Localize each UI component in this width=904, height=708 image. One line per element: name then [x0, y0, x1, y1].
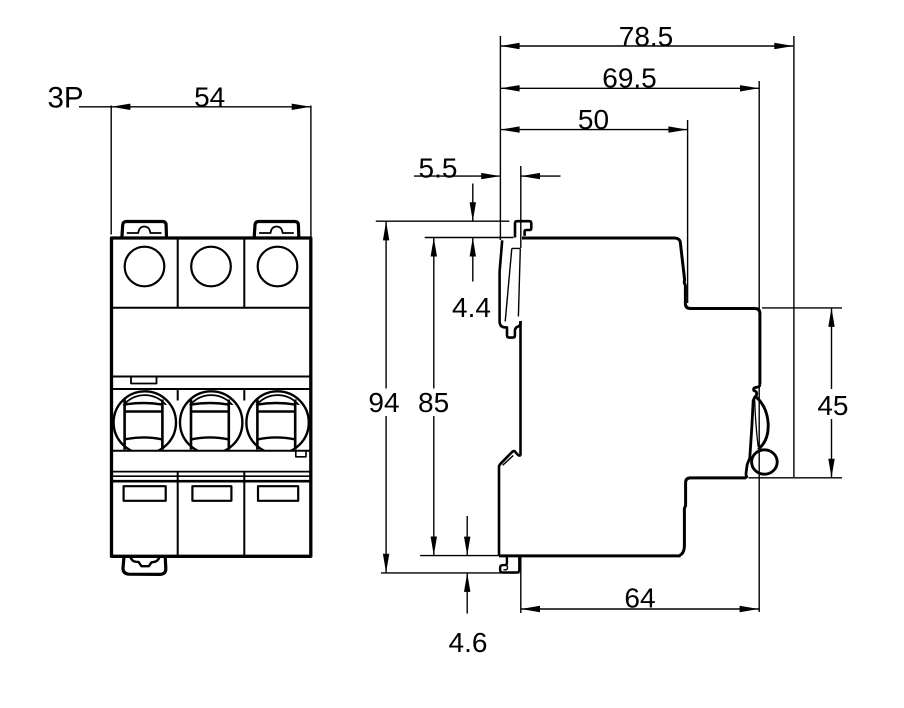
svg-text:45: 45: [817, 390, 848, 421]
svg-text:5.5: 5.5: [419, 153, 458, 184]
svg-text:78.5: 78.5: [619, 21, 674, 52]
svg-text:85: 85: [418, 387, 449, 418]
svg-text:4.6: 4.6: [449, 627, 488, 658]
svg-text:64: 64: [624, 582, 655, 613]
svg-text:54: 54: [194, 81, 225, 112]
svg-text:50: 50: [578, 104, 609, 135]
svg-text:3P: 3P: [48, 82, 84, 115]
svg-text:4.4: 4.4: [452, 292, 491, 323]
svg-text:69.5: 69.5: [602, 63, 657, 94]
svg-text:94: 94: [368, 387, 399, 418]
